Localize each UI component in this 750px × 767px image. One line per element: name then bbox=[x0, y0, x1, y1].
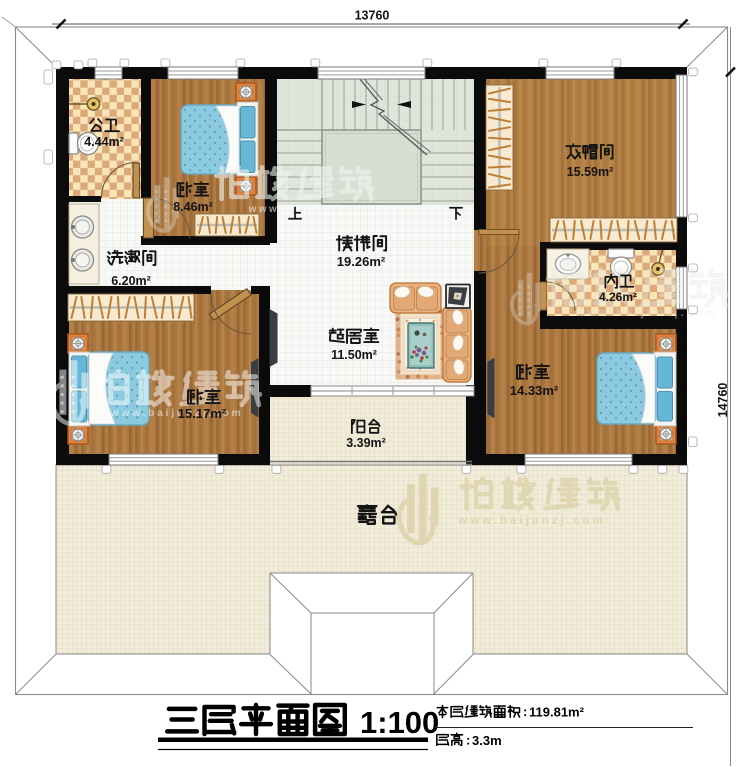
svg-text::: : bbox=[466, 733, 470, 748]
svg-text:3.39m²: 3.39m² bbox=[346, 436, 386, 450]
svg-text:6.20m²: 6.20m² bbox=[111, 274, 151, 288]
svg-text:14.33m²: 14.33m² bbox=[510, 383, 559, 398]
svg-text:11.50m²: 11.50m² bbox=[331, 348, 377, 362]
svg-text:119.81m²: 119.81m² bbox=[529, 705, 585, 720]
svg-text::: : bbox=[523, 704, 527, 719]
svg-text:www.baijunzj.com: www.baijunzj.com bbox=[248, 204, 374, 215]
svg-text:13760: 13760 bbox=[355, 9, 390, 23]
svg-text:4.26m²: 4.26m² bbox=[599, 290, 637, 304]
svg-text:www.baijunzj.com: www.baijunzj.com bbox=[457, 515, 605, 527]
svg-text:15.17m²: 15.17m² bbox=[178, 406, 227, 421]
svg-text:3.3m: 3.3m bbox=[472, 733, 502, 748]
svg-text:15.59m²: 15.59m² bbox=[567, 165, 614, 179]
svg-text:14760: 14760 bbox=[716, 383, 730, 418]
svg-text:8.46m²: 8.46m² bbox=[173, 200, 213, 214]
svg-text:1:100: 1:100 bbox=[360, 705, 439, 740]
svg-text:4.44m²: 4.44m² bbox=[84, 135, 124, 149]
svg-text:19.26m²: 19.26m² bbox=[337, 254, 386, 269]
svg-text:www.baijunzj.com: www.baijunzj.com bbox=[575, 307, 719, 319]
